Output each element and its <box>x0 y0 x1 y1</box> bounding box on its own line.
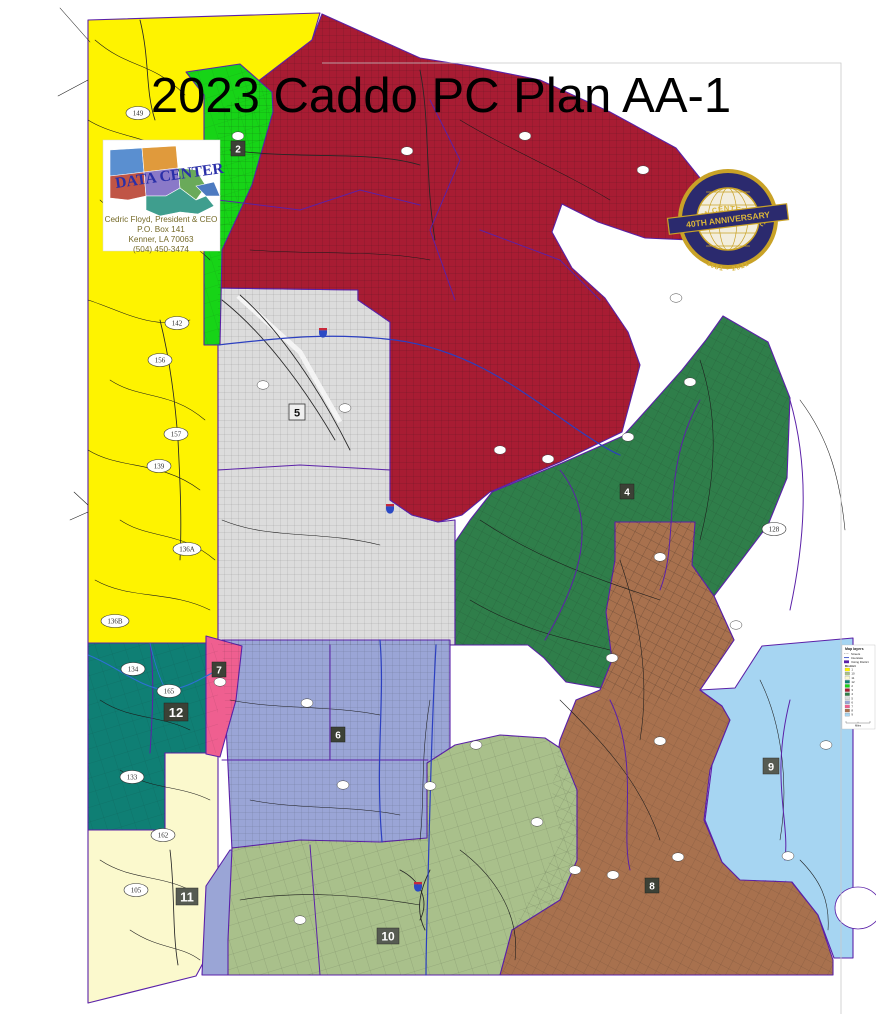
svg-text:9: 9 <box>768 762 774 774</box>
road-shield-139: 139 <box>147 460 171 473</box>
caddo-district-map: 149 142 156 157 139 136A 136B 134 165 13… <box>0 0 876 1024</box>
svg-text:10: 10 <box>381 930 395 944</box>
legend-title: Map layers <box>845 647 864 651</box>
svg-text:105: 105 <box>131 887 142 895</box>
road-shield-133: 133 <box>120 771 144 784</box>
road-shield-128: 128 <box>762 523 786 536</box>
legend-scale-label: Miles <box>855 724 862 728</box>
svg-text:12: 12 <box>169 705 183 720</box>
svg-text:8: 8 <box>649 882 655 893</box>
svg-text:139: 139 <box>154 463 165 471</box>
logo-box: DATA CENTER Cedric Floyd, President & CE… <box>103 140 226 254</box>
district-label-7: 7 <box>212 662 226 677</box>
svg-text:162: 162 <box>158 832 169 840</box>
legend-voting-district-symbol <box>844 660 849 663</box>
road-shield-156: 156 <box>148 354 172 367</box>
svg-text:134: 134 <box>128 666 139 674</box>
district-label-9: 9 <box>763 758 779 774</box>
road-shield-136A: 136A <box>173 543 201 556</box>
svg-text:6: 6 <box>335 731 341 742</box>
svg-text:2: 2 <box>235 145 241 156</box>
logo-contact-line: (504) 450-3474 <box>133 245 189 254</box>
district-label-5: 5 <box>289 404 305 420</box>
road-shield-165: 165 <box>157 685 181 698</box>
logo-contact-line: P.O. Box 141 <box>137 225 185 234</box>
district-label-11: 11 <box>176 888 198 905</box>
road-shield-142: 142 <box>165 317 189 330</box>
logo-contact-line: Kenner, LA 70063 <box>128 235 194 244</box>
svg-text:11: 11 <box>180 890 194 905</box>
svg-text:136A: 136A <box>179 546 195 554</box>
svg-text:4: 4 <box>624 488 630 499</box>
map-page: 149 142 156 157 139 136A 136B 134 165 13… <box>0 0 876 1024</box>
district-label-12: 12 <box>164 703 188 721</box>
svg-text:157: 157 <box>171 431 182 439</box>
road-shield-157: 157 <box>164 428 188 441</box>
svg-text:149: 149 <box>133 110 144 118</box>
district-label-2: 2 <box>231 141 245 156</box>
map-legend: Map layers Streets Interstate Voting Dis… <box>842 645 875 729</box>
svg-text:136B: 136B <box>107 618 123 626</box>
district-label-4: 4 <box>620 484 634 499</box>
svg-text:156: 156 <box>155 357 166 365</box>
district-label-10: 10 <box>377 928 399 944</box>
district-label-8: 8 <box>645 878 659 893</box>
legend-district-header: District <box>845 664 856 668</box>
svg-text:7: 7 <box>216 666 222 677</box>
road-shield-134: 134 <box>121 663 145 676</box>
road-shield-136B: 136B <box>101 615 129 628</box>
svg-text:165: 165 <box>164 688 175 696</box>
map-title: 2023 Caddo PC Plan AA-1 <box>151 69 731 123</box>
svg-text:133: 133 <box>127 774 138 782</box>
svg-text:5: 5 <box>294 408 300 420</box>
svg-text:128: 128 <box>769 526 780 534</box>
logo-contact-line: Cedric Floyd, President & CEO <box>105 215 218 224</box>
road-shield-162: 162 <box>151 829 175 842</box>
svg-text:142: 142 <box>172 320 183 328</box>
road-shield-149: 149 <box>126 107 150 120</box>
district-label-6: 6 <box>331 727 345 742</box>
road-shield-105: 105 <box>124 884 148 897</box>
